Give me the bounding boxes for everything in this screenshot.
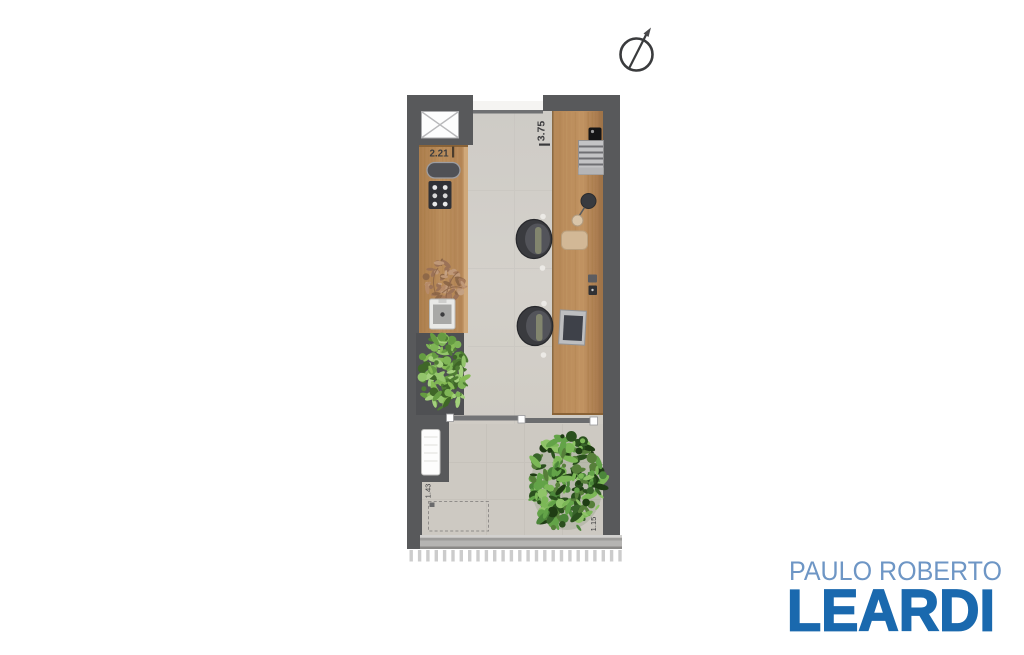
svg-text:3.75: 3.75 (536, 121, 548, 142)
svg-text:1.43: 1.43 (424, 484, 433, 499)
svg-text:2.21: 2.21 (429, 149, 449, 160)
svg-text:1.15: 1.15 (589, 517, 598, 532)
svg-text:LEARDI: LEARDI (787, 579, 995, 644)
